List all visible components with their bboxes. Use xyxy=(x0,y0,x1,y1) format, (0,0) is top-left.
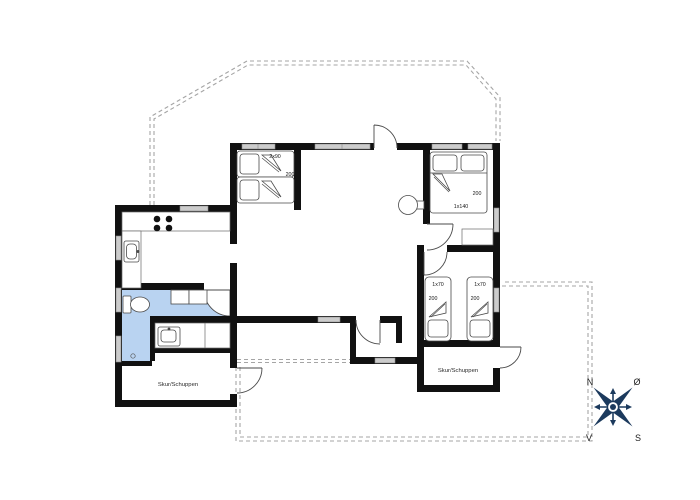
compass-center-dot xyxy=(610,404,616,410)
wardrobe xyxy=(462,229,493,245)
bed-size-label: 1x140 xyxy=(454,204,468,210)
shed-left-label: Skur/Schuppen xyxy=(158,382,198,388)
floorplan-canvas: 2x90 200 200 1x140 1x70 200 1x70 200 Sku… xyxy=(0,0,700,500)
bedroom-right-door-swing xyxy=(424,252,447,275)
pillow xyxy=(461,155,484,171)
entrance-door-swing xyxy=(374,125,397,148)
toilet-tank-icon xyxy=(123,296,131,313)
pillow xyxy=(433,155,457,171)
kitchen xyxy=(122,212,230,288)
bathroom-cabinet xyxy=(171,290,189,304)
bed-size-label: 2x90 xyxy=(269,154,281,160)
shed-left-door-swing xyxy=(237,368,262,393)
pillow xyxy=(240,154,259,174)
hall-door-swing xyxy=(356,320,380,344)
kitchen-faucet-icon xyxy=(137,250,140,253)
bed-length-label: 200 xyxy=(429,296,438,302)
compass-rose: N Ø V S xyxy=(586,377,641,443)
compass-south-label: S xyxy=(635,433,641,443)
plot-boundary-dashed xyxy=(150,61,592,441)
floorplan-drawing: 2x90 200 200 1x140 1x70 200 1x70 200 Sku… xyxy=(0,0,700,500)
bed-length-label: 200 xyxy=(286,172,295,178)
shed-right-door-swing xyxy=(500,347,521,368)
bed-length-label: 200 xyxy=(473,191,482,197)
pillow xyxy=(240,180,259,200)
wood-stove-icon xyxy=(399,196,425,215)
compass-west-label: V xyxy=(586,433,592,443)
pillow xyxy=(428,320,448,337)
compass-east-label: Ø xyxy=(633,377,640,387)
pillow xyxy=(470,320,490,337)
shed-right-label: Skur/Schuppen xyxy=(438,368,478,374)
bedroom-top-right-furniture xyxy=(430,152,493,245)
bathroom-cabinet xyxy=(189,290,207,304)
toilet-bowl-icon xyxy=(131,297,150,312)
compass-north-label: N xyxy=(587,377,594,387)
bed-size-label: 1x70 xyxy=(432,282,444,288)
bed-size-label: 1x70 xyxy=(474,282,486,288)
bed-length-label: 200 xyxy=(471,296,480,302)
kitchen-counter-top xyxy=(122,212,230,231)
